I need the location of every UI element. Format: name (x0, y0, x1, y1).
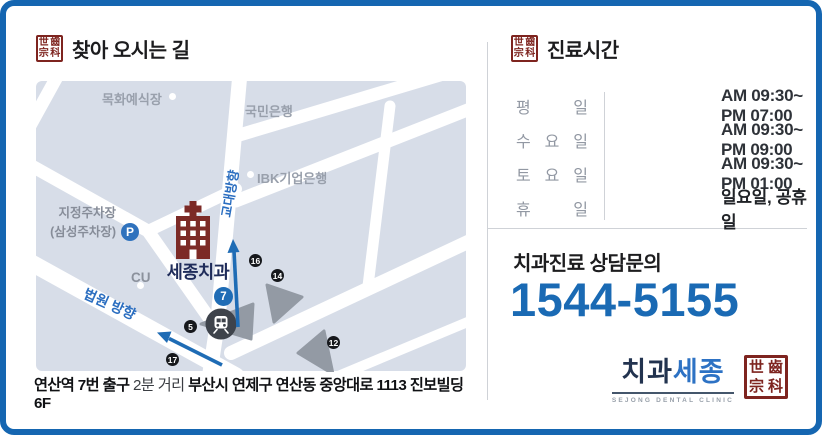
logo-name-part2: 세종 (673, 357, 725, 387)
day-label: 수 요 일 (511, 128, 591, 152)
landmark-dot (137, 282, 144, 289)
address-station: 연산역 7번 출구 (34, 377, 129, 394)
logo-text: 치과세종 SEJONG DENTAL CLINIC (612, 350, 734, 404)
table-row: 평 일 AM 09:30~ PM 07:00 (511, 89, 807, 123)
exit-17-badge: 17 (166, 353, 179, 366)
phone-number: 1544-5155 (510, 272, 739, 327)
logo-name: 치과세종 (612, 350, 734, 389)
directions-map: 목화예식장 국민은행 IBK기업은행 CU 지정주차장 (삼성주차장) P 세종… (36, 80, 466, 372)
landmark-dot (169, 93, 176, 100)
logo-name-part1: 치과 (621, 357, 673, 387)
hours-header: 世 齒 宗 科 진료시간 (511, 34, 619, 63)
seal-char: 科 (525, 49, 537, 61)
exit-12-badge: 12 (327, 336, 340, 349)
exit-7-badge: 7 (214, 287, 233, 306)
subway-station-icon (206, 309, 237, 340)
parking-line1: 지정주차장 (46, 204, 116, 223)
address-line: 연산역 7번 출구 2분 거리 부산시 연제구 연산동 중앙대로 1113 진보… (34, 373, 479, 412)
clinic-seal-icon: 世 齒 宗 科 (511, 35, 538, 62)
seal-char: 宗 (747, 377, 766, 396)
time-value: 일요일, 공휴일 (695, 183, 807, 233)
exit-16-badge: 16 (249, 254, 262, 267)
logo-rule: SEJONG DENTAL CLINIC (612, 392, 734, 404)
seal-char: 宗 (38, 49, 50, 61)
landmark-dot (247, 171, 254, 178)
day-label: 토 요 일 (511, 162, 591, 186)
table-row: 수 요 일 AM 09:30~ PM 09:00 (511, 123, 807, 157)
hours-title: 진료시간 (547, 34, 619, 63)
seal-char: 世 (747, 358, 766, 377)
clinic-seal-icon: 世 齒 宗 科 (744, 355, 788, 399)
seal-char: 科 (50, 49, 62, 61)
directions-header: 世 齒 宗 科 찾아 오시는 길 (36, 34, 190, 63)
clinic-seal-icon: 世 齒 宗 科 (36, 35, 63, 62)
seal-char: 科 (766, 377, 785, 396)
parking-label: 지정주차장 (삼성주차장) (46, 204, 116, 243)
landmark-kookmin-label: 국민은행 (245, 101, 293, 120)
day-label: 휴 일 (511, 196, 591, 220)
table-row: 휴 일 일요일, 공휴일 (511, 191, 807, 225)
address-distance: 2분 거리 (133, 377, 185, 394)
logo-tagline: SEJONG DENTAL CLINIC (612, 397, 734, 404)
seal-char: 宗 (513, 49, 525, 61)
exit-5-badge: 5 (184, 320, 197, 333)
column-divider (487, 42, 488, 400)
parking-icon: P (121, 223, 139, 241)
landmark-ibk-label: IBK기업은행 (257, 168, 327, 187)
seal-char: 世 (38, 37, 50, 49)
landmark-mokhwa-label: 목화예식장 (102, 89, 162, 108)
seal-char: 齒 (525, 37, 537, 49)
clinic-logo: 치과세종 SEJONG DENTAL CLINIC 世 齒 宗 科 (612, 350, 788, 404)
day-label: 평 일 (511, 94, 591, 118)
landmark-dot (235, 104, 242, 111)
hours-table: 평 일 AM 09:30~ PM 07:00 수 요 일 AM 09:30~ P… (511, 89, 807, 225)
seal-char: 齒 (50, 37, 62, 49)
exit-14-badge: 14 (271, 269, 284, 282)
seal-char: 齒 (766, 358, 785, 377)
seal-char: 世 (513, 37, 525, 49)
directions-title: 찾아 오시는 길 (72, 34, 190, 63)
clinic-info-card: 世 齒 宗 科 찾아 오시는 길 (0, 0, 822, 435)
parking-line2: (삼성주차장) (46, 223, 116, 242)
clinic-map-label: 세종치과 (152, 259, 244, 284)
